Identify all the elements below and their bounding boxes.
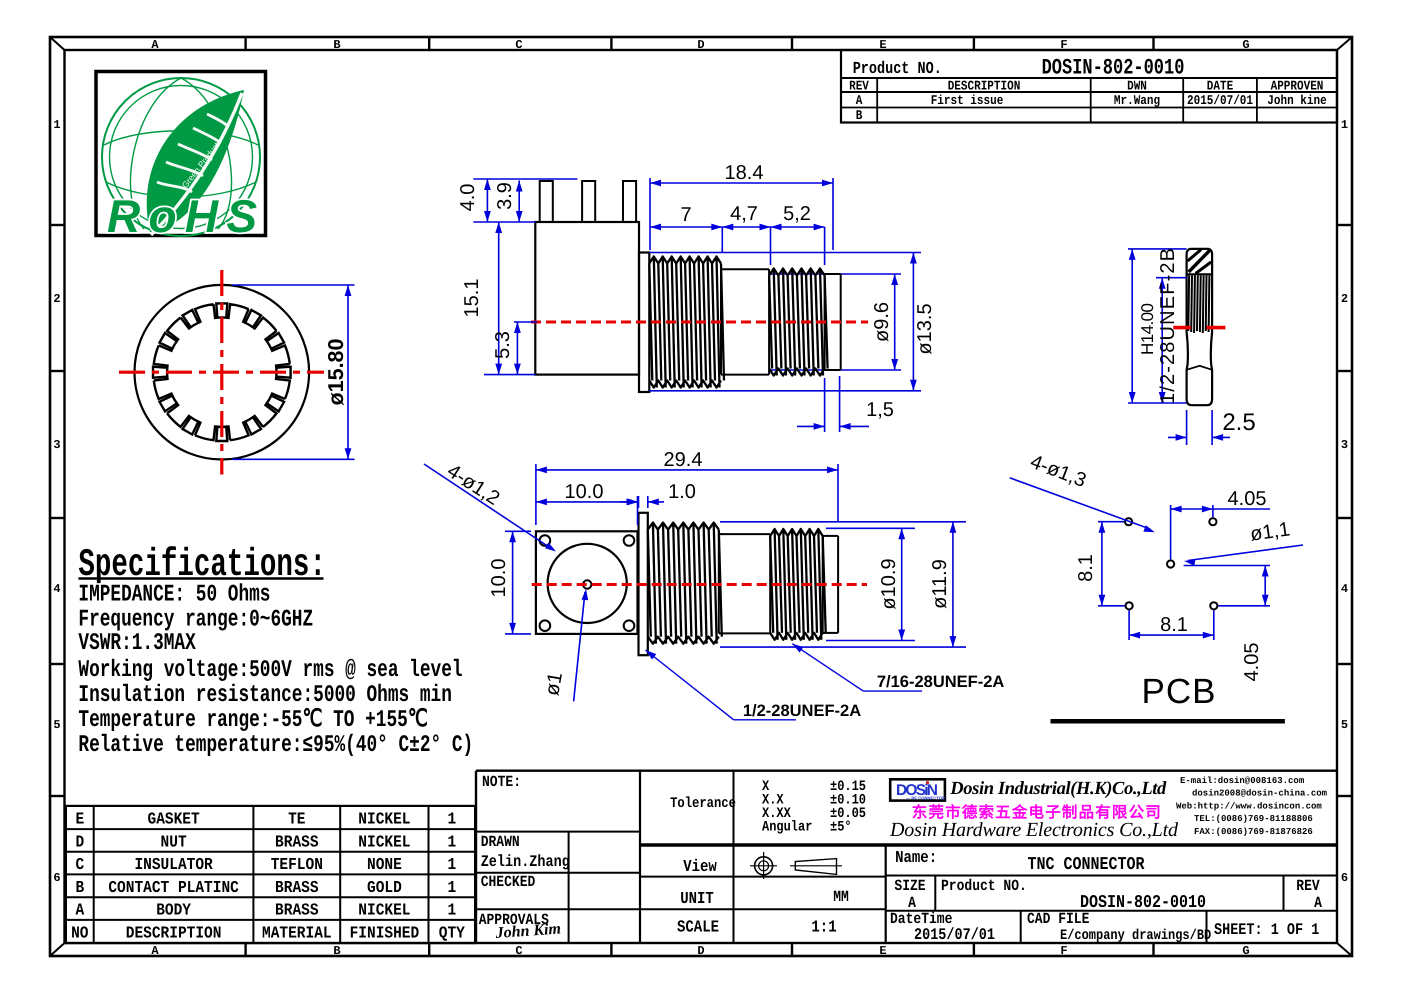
svg-text:18.4: 18.4 <box>725 162 764 184</box>
svg-text:NICKEL: NICKEL <box>358 902 410 920</box>
svg-text:3: 3 <box>53 438 60 452</box>
svg-text:±5°: ±5° <box>830 819 852 836</box>
svg-text:2015/07/01: 2015/07/01 <box>914 927 995 945</box>
svg-text:TE: TE <box>288 811 306 829</box>
svg-text:CONTACT PLATINC: CONTACT PLATINC <box>108 879 239 897</box>
svg-text:D: D <box>697 38 704 52</box>
svg-text:F: F <box>1060 944 1067 958</box>
svg-text:1: 1 <box>1341 118 1348 132</box>
svg-text:E: E <box>75 811 84 829</box>
svg-text:MM: MM <box>833 888 849 906</box>
svg-text:Zelin.Zhang: Zelin.Zhang <box>481 854 570 872</box>
svg-text:1: 1 <box>53 118 60 132</box>
svg-text:FAX:(0086)769-81876826: FAX:(0086)769-81876826 <box>1194 827 1313 837</box>
svg-text:7/16-28UNEF-2A: 7/16-28UNEF-2A <box>877 673 1005 691</box>
svg-text:1.0: 1.0 <box>668 481 696 503</box>
svg-text:BRASS: BRASS <box>275 902 319 920</box>
svg-text:C: C <box>75 856 84 874</box>
svg-text:DWN: DWN <box>1127 80 1147 94</box>
svg-text:GOLD: GOLD <box>367 879 402 897</box>
svg-text:DOSIN-802-0010: DOSIN-802-0010 <box>1080 893 1206 913</box>
svg-text:John kine: John kine <box>1267 94 1327 108</box>
svg-text:DATE: DATE <box>1207 80 1234 94</box>
svg-text:TEFLON: TEFLON <box>271 856 323 874</box>
svg-text:2.5: 2.5 <box>1222 409 1255 436</box>
svg-text:Product NO.: Product NO. <box>941 877 1027 895</box>
svg-text:First issue: First issue <box>931 94 1004 108</box>
svg-text:CHECKED: CHECKED <box>481 873 536 891</box>
svg-text:B: B <box>75 879 84 897</box>
svg-text:10.0: 10.0 <box>488 559 510 598</box>
svg-text:NONE: NONE <box>367 856 402 874</box>
svg-text:E/company drawings/BD: E/company drawings/BD <box>1060 927 1211 944</box>
svg-text:NUT: NUT <box>161 834 187 852</box>
svg-text:GASKET: GASKET <box>147 811 200 829</box>
svg-text:REV: REV <box>1296 877 1320 895</box>
svg-text:BODY: BODY <box>156 902 191 920</box>
svg-text:E: E <box>879 944 886 958</box>
svg-text:1: 1 <box>447 879 456 897</box>
svg-text:INSULATOR: INSULATOR <box>134 856 213 874</box>
svg-text:Web:http://www.dosincon.com: Web:http://www.dosincon.com <box>1176 802 1322 812</box>
svg-text:SIZE: SIZE <box>894 877 925 895</box>
svg-text:APPROVEN: APPROVEN <box>1271 80 1324 94</box>
svg-text:1/2-28UNEF-2B: 1/2-28UNEF-2B <box>1157 248 1179 404</box>
svg-text:15.1: 15.1 <box>461 279 483 318</box>
svg-text:B: B <box>333 944 340 958</box>
svg-text:8.1: 8.1 <box>1160 614 1188 636</box>
svg-text:A: A <box>151 38 159 52</box>
svg-text:D: D <box>697 944 704 958</box>
svg-text:DESCRIPTION: DESCRIPTION <box>948 80 1021 94</box>
svg-text:2: 2 <box>1341 292 1348 306</box>
svg-text:1: 1 <box>447 856 456 874</box>
svg-text:SCALE: SCALE <box>677 918 719 937</box>
svg-text:3.9: 3.9 <box>494 182 516 210</box>
svg-text:4.05: 4.05 <box>1241 643 1263 682</box>
svg-text:Angular: Angular <box>762 819 812 836</box>
svg-text:SHEET: 1 OF 1: SHEET: 1 OF 1 <box>1214 922 1319 940</box>
svg-text:5: 5 <box>1341 718 1348 732</box>
svg-text:MATERIAL: MATERIAL <box>262 925 332 943</box>
svg-text:NICKEL: NICKEL <box>358 811 410 829</box>
svg-text:TEL:(0086)769-81188806: TEL:(0086)769-81188806 <box>1194 814 1313 824</box>
svg-text:H14.00: H14.00 <box>1138 303 1157 355</box>
svg-text:Tolerance: Tolerance <box>670 795 736 812</box>
svg-text:A: A <box>1314 894 1322 912</box>
svg-text:Insulation resistance:5000 Ohm: Insulation resistance:5000 Ohms min <box>78 682 451 709</box>
svg-text:Dosin Hardware Electronics Co.: Dosin Hardware Electronics Co.,Ltd <box>889 819 1179 841</box>
svg-text:E-mail:dosin@008163.com: E-mail:dosin@008163.com <box>1180 776 1305 786</box>
svg-text:ø13.5: ø13.5 <box>914 303 936 354</box>
svg-text:VSWR:1.3MAX: VSWR:1.3MAX <box>78 630 196 657</box>
svg-text:QTY: QTY <box>439 925 465 943</box>
svg-text:ø1,1: ø1,1 <box>1249 518 1292 545</box>
svg-text:Product NO.: Product NO. <box>853 61 942 80</box>
svg-text:A: A <box>75 902 84 920</box>
svg-text:4-ø1,3: 4-ø1,3 <box>1027 451 1089 492</box>
svg-text:BRASS: BRASS <box>275 834 319 852</box>
svg-text:CAD FILE: CAD FILE <box>1027 910 1090 928</box>
svg-text:4: 4 <box>1341 582 1348 596</box>
svg-text:G: G <box>1242 944 1249 958</box>
svg-text:NO: NO <box>71 925 89 943</box>
svg-text:Name:: Name: <box>895 849 937 868</box>
svg-text:1: 1 <box>447 811 456 829</box>
svg-text:5: 5 <box>53 718 60 732</box>
svg-text:Relative temperature:≤95%(40°: Relative temperature:≤95%(40° C±2° C) <box>78 732 473 759</box>
svg-text:1/2-28UNEF-2A: 1/2-28UNEF-2A <box>743 702 861 720</box>
svg-text:4.0: 4.0 <box>457 184 479 212</box>
svg-text:UNIT: UNIT <box>680 890 714 909</box>
svg-text:5,2: 5,2 <box>783 203 811 225</box>
svg-text:ø11.9: ø11.9 <box>929 559 951 609</box>
svg-text:John Kim: John Kim <box>494 920 561 942</box>
svg-text:Dosin Industrial(H.K)Co.,Ltd: Dosin Industrial(H.K)Co.,Ltd <box>949 779 1167 799</box>
svg-text:PCB: PCB <box>1142 672 1217 711</box>
svg-text:D: D <box>75 834 84 852</box>
svg-text:IMPEDANCE: 50 Ohms: IMPEDANCE: 50 Ohms <box>78 582 270 609</box>
svg-text:6: 6 <box>53 871 60 885</box>
svg-text:BRASS: BRASS <box>275 879 319 897</box>
svg-text:Working voltage:500V rms @ sea: Working voltage:500V rms @ sea level <box>78 657 462 684</box>
svg-text:29.4: 29.4 <box>664 449 703 471</box>
svg-text:A: A <box>151 944 159 958</box>
svg-text:1: 1 <box>447 834 456 852</box>
svg-text:1: 1 <box>447 902 456 920</box>
svg-text:4,7: 4,7 <box>730 203 758 225</box>
svg-text:TNC CONNECTOR: TNC CONNECTOR <box>1027 855 1144 875</box>
svg-text:1,5: 1,5 <box>866 399 894 421</box>
svg-text:ø10.9: ø10.9 <box>878 558 900 609</box>
svg-text:DateTime: DateTime <box>890 910 953 928</box>
svg-text:Mr.Wang: Mr.Wang <box>1114 94 1160 108</box>
svg-text:3: 3 <box>1341 438 1348 452</box>
svg-text:4-ø1,2: 4-ø1,2 <box>443 460 503 510</box>
svg-text:4.05: 4.05 <box>1228 488 1267 510</box>
svg-text:NICKEL: NICKEL <box>358 834 410 852</box>
svg-text:REV: REV <box>849 80 869 94</box>
svg-text:DESCRIPTION: DESCRIPTION <box>126 925 222 943</box>
svg-text:10.0: 10.0 <box>565 481 604 503</box>
svg-text:4: 4 <box>53 582 60 596</box>
svg-text:ø1: ø1 <box>541 671 567 698</box>
svg-text:ø15.80: ø15.80 <box>324 338 348 405</box>
svg-text:B: B <box>333 38 340 52</box>
svg-text:— RF CONNECTOR: — RF CONNECTOR <box>906 796 945 801</box>
svg-text:DRAWN: DRAWN <box>481 833 520 851</box>
svg-text:5.3: 5.3 <box>492 331 514 359</box>
svg-text:FINISHED: FINISHED <box>350 925 420 943</box>
svg-text:8.1: 8.1 <box>1075 554 1097 582</box>
svg-text:NOTE:: NOTE: <box>482 773 521 791</box>
svg-text:2: 2 <box>53 292 60 306</box>
svg-text:C: C <box>515 944 522 958</box>
svg-text:View: View <box>683 858 717 877</box>
svg-text:1:1: 1:1 <box>811 918 836 937</box>
svg-text:6: 6 <box>1341 871 1348 885</box>
svg-text:ø9.6: ø9.6 <box>871 302 893 342</box>
svg-text:A: A <box>856 94 863 108</box>
svg-text:C: C <box>515 38 522 52</box>
svg-text:B: B <box>856 109 863 123</box>
svg-text:dosin2008@dosin-china.com: dosin2008@dosin-china.com <box>1192 789 1328 799</box>
svg-text:Temperature range:-55℃ TO +155: Temperature range:-55℃ TO +155℃ <box>78 707 427 734</box>
svg-text:7: 7 <box>680 204 691 226</box>
svg-text:2015/07/01: 2015/07/01 <box>1187 94 1253 108</box>
svg-text:DOSIN-802-0010: DOSIN-802-0010 <box>1042 57 1185 82</box>
